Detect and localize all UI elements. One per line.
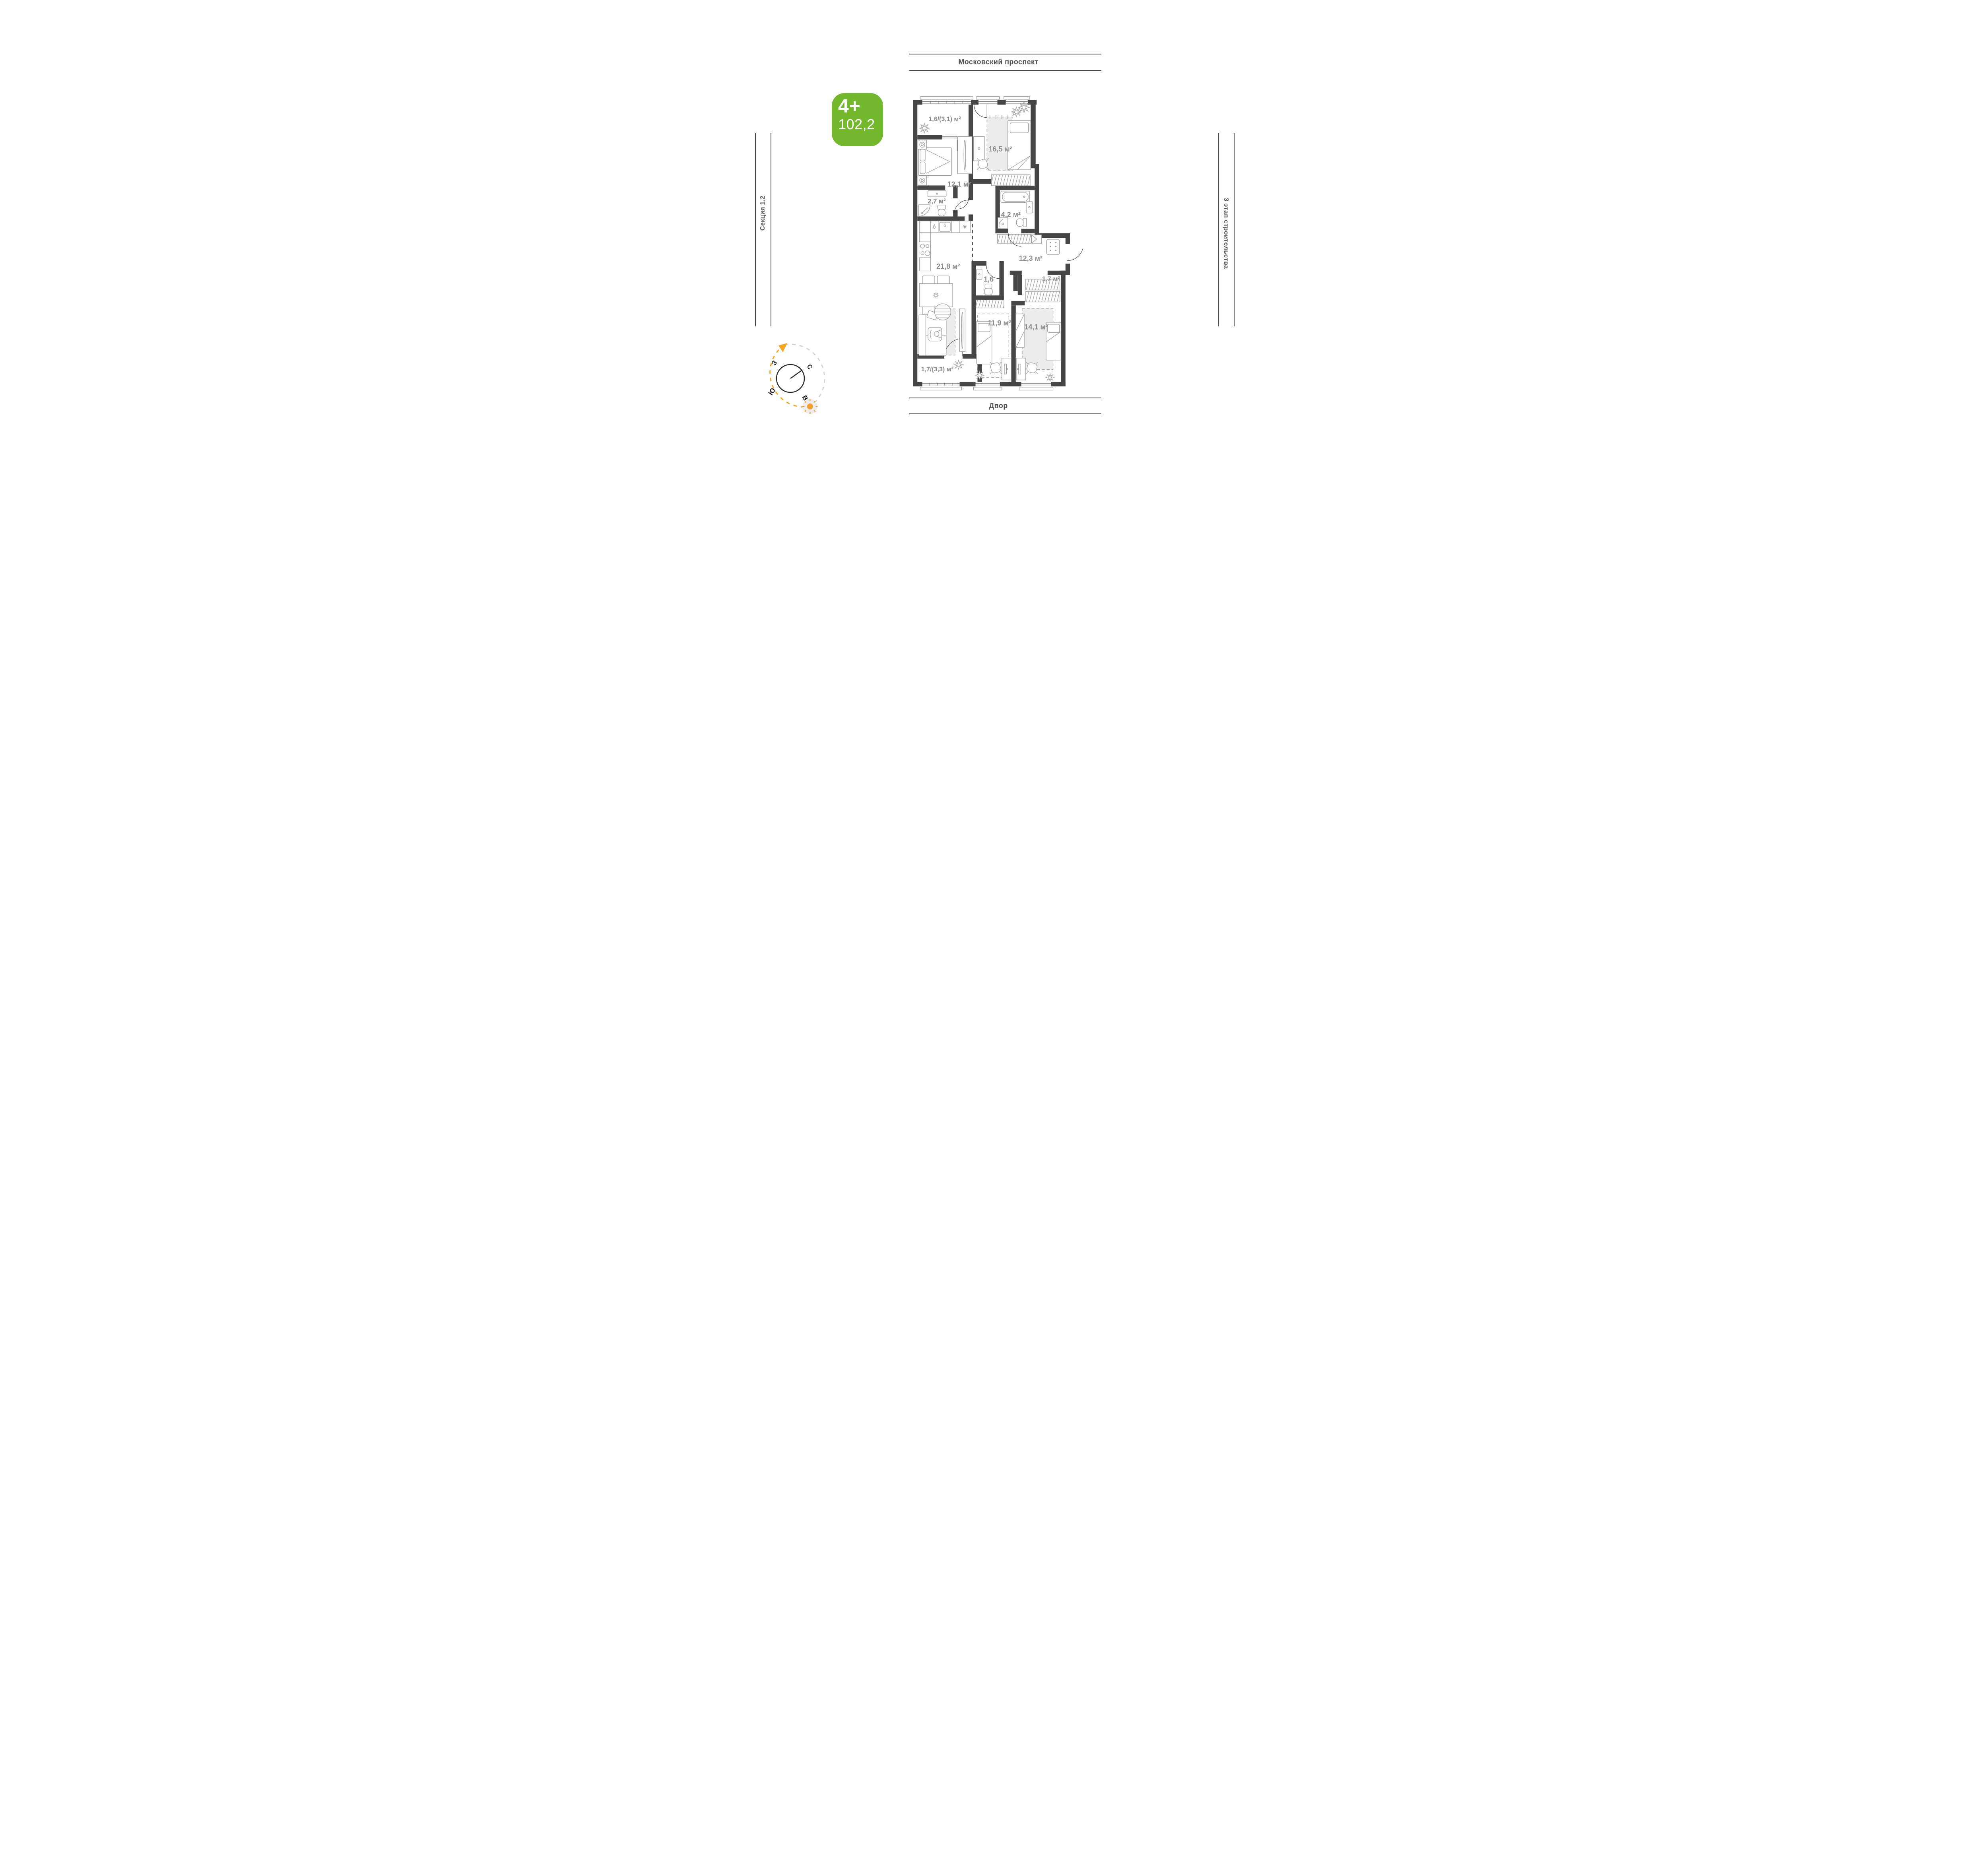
room-label-12-1: 12,1 м² [947, 180, 971, 188]
room-label-2-7: 2,7 м² [928, 198, 946, 205]
window-balcony-12-1 [942, 135, 957, 139]
compass-north: С [805, 363, 814, 371]
room-label-4-2: 4,2 м² [1001, 211, 1021, 219]
room-label-11-9: 11,9 м² [988, 319, 1011, 327]
sun-path-arrow-icon [779, 343, 787, 352]
room-label-12-3: 12,3 м² [1019, 254, 1043, 262]
sun-icon [802, 399, 817, 414]
badge-area-value: 102,2 [838, 116, 883, 132]
section-line-inner [771, 133, 771, 326]
door-16-5 [974, 105, 987, 118]
plant-icon-11-9 [975, 371, 984, 380]
round-rug-icon [935, 304, 951, 320]
sink-icon-wc [977, 269, 982, 279]
single-bed-icon-14-1 [1046, 322, 1061, 360]
courtyard-line-upper [909, 398, 1101, 398]
bathtub-icon [1001, 191, 1030, 203]
street-top-label: Московский проспект [958, 58, 1038, 66]
open-shelf-icon [1032, 235, 1042, 243]
wardrobe-icon-closet-b [1026, 291, 1060, 302]
vanity-icon-4-2 [1026, 202, 1033, 213]
room-label-1-7: 1,7 м² [1042, 275, 1060, 283]
stage-label: 3 этап строительства [1222, 174, 1229, 293]
room-label-1-6: 1,6 [984, 275, 994, 283]
plant-icon-16-5-b [1019, 102, 1030, 113]
wardrobe-icon-hallway [998, 235, 1031, 244]
street-top-line-upper [909, 54, 1101, 54]
wardrobe-icon-11-9 [976, 300, 1004, 308]
room-label-14-1: 14,1 м² [1024, 323, 1048, 331]
room-label-balcony-bottom: 1,7/(3,3) м² [921, 366, 953, 373]
armchair-person-icon [928, 327, 942, 341]
wardrobe-icon-14-1 [1016, 314, 1024, 348]
compass: З С Ю В [751, 339, 830, 418]
section-line-outer [755, 133, 756, 326]
doormat-icon [1046, 239, 1060, 255]
kitchen-sink-icon [940, 222, 950, 231]
single-bed-icon-11-9 [977, 321, 992, 364]
room-label-balcony-top: 1,6/(3,1) м² [928, 116, 961, 123]
plant-icon-balcony-bottom [954, 360, 963, 369]
room-label-21-8: 21,8 м² [936, 262, 960, 270]
washing-machine-icon [998, 217, 1008, 229]
window-11-9 [976, 382, 1000, 386]
compass-south: Ю [767, 386, 777, 396]
window-14-1 [1021, 382, 1051, 386]
badge-rooms-count: 4+ [838, 97, 883, 116]
wardrobe-mirror-icon [958, 136, 972, 174]
window-balcony-top [922, 101, 971, 105]
desk-icon-11-9 [1002, 358, 1011, 380]
apartment-badge: 4+ 102,2 [832, 93, 883, 146]
plant-icon-14-1 [1046, 373, 1054, 382]
toilet-icon-wc [984, 284, 992, 295]
shower-icon [919, 205, 930, 216]
courtyard-line-lower [909, 413, 1101, 414]
double-bed-icon [918, 140, 952, 185]
stove-icon [919, 242, 931, 258]
stage-line-outer [1234, 133, 1235, 326]
section-label: Секция 1.2 [759, 173, 767, 253]
floorplan-svg: 1,6/(3,1) м² 16,5 м² 12,1 м² 2,7 м² 4,2 … [913, 94, 1084, 392]
door-entrance [1067, 248, 1083, 261]
plant-icon-16-5-a [1011, 107, 1021, 117]
window-balcony-bottom [922, 382, 960, 386]
window-16-5-a [978, 101, 998, 105]
fridge-icon [963, 225, 967, 229]
courtyard-label: Двор [989, 402, 1008, 410]
stage-line-inner [1218, 133, 1219, 326]
toilet-icon-4-2 [1017, 218, 1027, 227]
tv-console-icon [960, 309, 965, 352]
floorplan-page: Московский проспект Двор Секция 1.2 3 эт… [696, 0, 1292, 468]
sink-icon-2-7 [928, 191, 946, 197]
vanity-desk-icon [974, 136, 985, 161]
room-label-16-5: 16,5 м² [988, 145, 1012, 153]
plant-icon-balcony-top [919, 123, 929, 133]
desk-icon-14-1 [1016, 358, 1026, 380]
street-top-line-lower [909, 70, 1101, 71]
toilet-icon-2-7 [938, 205, 946, 216]
wardrobe-icon-16-5 [992, 175, 1031, 186]
